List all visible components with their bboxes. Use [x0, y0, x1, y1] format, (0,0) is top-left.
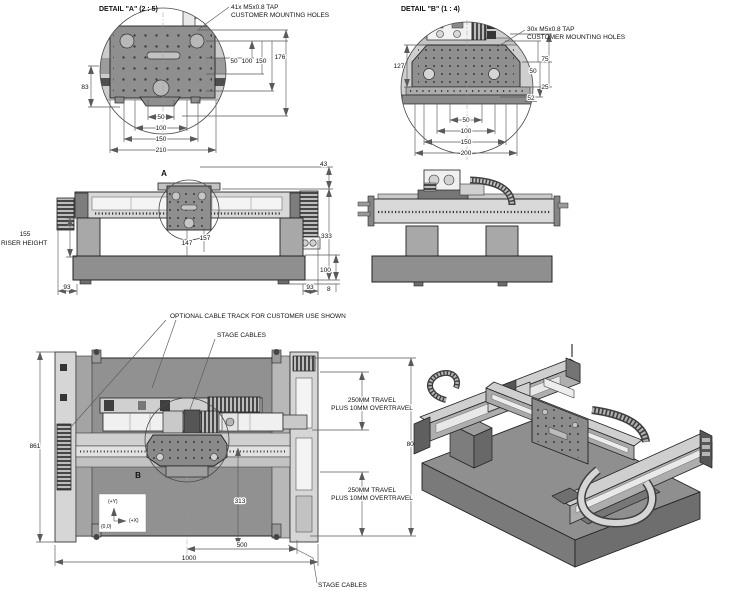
- front-riser-right: [280, 218, 303, 256]
- detail-b-dim-bottom-150: 150: [461, 139, 472, 146]
- plan-coordinate-system: (+Y) (+X) (0,0): [99, 494, 146, 532]
- front-left-motor: [57, 198, 74, 230]
- side-beam: [372, 199, 558, 223]
- detail-b-dim-52: 52: [527, 95, 535, 102]
- front-dim-333: 333: [321, 233, 332, 240]
- front-elevation-view: 43 333 100 8 147 157 93 93 155 RISER HEI…: [1, 161, 340, 295]
- front-dim-147: 147: [182, 240, 193, 247]
- plan-travel1-line1: 250MM TRAVEL: [348, 397, 397, 404]
- detail-b-dim-75: 75: [541, 56, 549, 63]
- plan-view: (+Y) (+X) (0,0) 861 800 313 500 1000 25: [30, 313, 418, 589]
- side-elevation-view: [358, 170, 568, 286]
- front-riser-height-value: 155: [20, 231, 31, 238]
- front-dim-43: 43: [320, 161, 328, 168]
- detail-b-dim-bottom-200: 200: [461, 150, 472, 157]
- detail-a-dim-50: 50: [230, 58, 238, 65]
- detail-b-dim-25: 25: [541, 84, 549, 91]
- detail-a-dim-100: 100: [242, 58, 253, 65]
- plan-dim-313: 313: [235, 498, 246, 505]
- detail-b-view: 127 75 50 25 52 50 100 150 200 DETAIL "B…: [394, 6, 626, 160]
- side-riser-left: [406, 226, 438, 256]
- detail-a-dim-150: 150: [256, 58, 267, 65]
- detail-a-dim-bottom-210: 210: [156, 147, 167, 154]
- plan-travel1-line2: PLUS 10MM OVERTRAVEL: [331, 405, 413, 412]
- side-base-slab: [372, 256, 552, 282]
- iso-back-cable-track: [430, 373, 457, 400]
- front-dim-93-left: 93: [63, 284, 71, 291]
- detail-b-dim-127: 127: [394, 63, 405, 70]
- axis-origin-label: (0,0): [101, 524, 112, 530]
- detail-a-title: DETAIL "A" (2 : 5): [99, 6, 158, 13]
- plan-travel2-line2: PLUS 10MM OVERTRAVEL: [331, 495, 413, 502]
- plan-travel2-line1: 250MM TRAVEL: [348, 487, 397, 494]
- plan-dim-861: 861: [30, 443, 41, 450]
- axis-plus-y-label: (+Y): [108, 499, 118, 505]
- axis-plus-x-label: (+X): [129, 518, 139, 524]
- front-riser-height-label: RISER HEIGHT: [1, 240, 47, 247]
- detail-a-dim-bottom-50: 50: [157, 114, 165, 121]
- note-optional-cable-track: OPTIONAL CABLE TRACK FOR CUSTOMER USE SH…: [170, 313, 346, 320]
- detail-a-dim-83: 83: [81, 84, 89, 91]
- front-riser-left: [77, 218, 100, 256]
- detail-b-dim-bottom-50: 50: [462, 117, 470, 124]
- front-detail-a-marker-label: A: [161, 169, 167, 178]
- detail-a-callout-line1: 41x M5x0.8 TAP: [231, 4, 278, 11]
- detail-a-dim-bottom-150: 150: [156, 136, 167, 143]
- detail-a-view: 50 100 150 176 83 50 100 150 210 DETAIL …: [81, 4, 329, 155]
- note-stage-cables-bottom: STAGE CABLES: [318, 582, 368, 589]
- detail-b-title: DETAIL "B" (1 : 4): [401, 6, 460, 13]
- drawing-sheet: 50 100 150 176 83 50 100 150 210 DETAIL …: [0, 0, 750, 614]
- plan-detail-b-marker-label: B: [135, 471, 141, 480]
- front-dim-157: 157: [200, 235, 211, 242]
- detail-b-callout-line2: CUSTOMER MOUNTING HOLES: [527, 34, 626, 41]
- front-dim-93-right: 93: [306, 284, 314, 291]
- front-dim-8: 8: [327, 286, 331, 293]
- detail-a-dim-176: 176: [275, 54, 286, 61]
- detail-b-dim-50: 50: [529, 68, 537, 75]
- side-riser-right: [486, 226, 518, 256]
- plan-dim-500: 500: [237, 542, 248, 549]
- front-base-slab: [73, 256, 305, 280]
- detail-b-dim-bottom-100: 100: [461, 128, 472, 135]
- detail-a-dim-bottom-100: 100: [156, 125, 167, 132]
- detail-a-callout-line2: CUSTOMER MOUNTING HOLES: [231, 12, 330, 19]
- isometric-view: [414, 344, 712, 567]
- plan-dim-1000: 1000: [182, 555, 197, 562]
- note-stage-cables-top: STAGE CABLES: [217, 332, 267, 339]
- front-dim-100: 100: [320, 267, 331, 274]
- detail-b-callout-line1: 30x M5x0.8 TAP: [527, 26, 574, 33]
- drawing-canvas: 50 100 150 176 83 50 100 150 210 DETAIL …: [0, 0, 750, 614]
